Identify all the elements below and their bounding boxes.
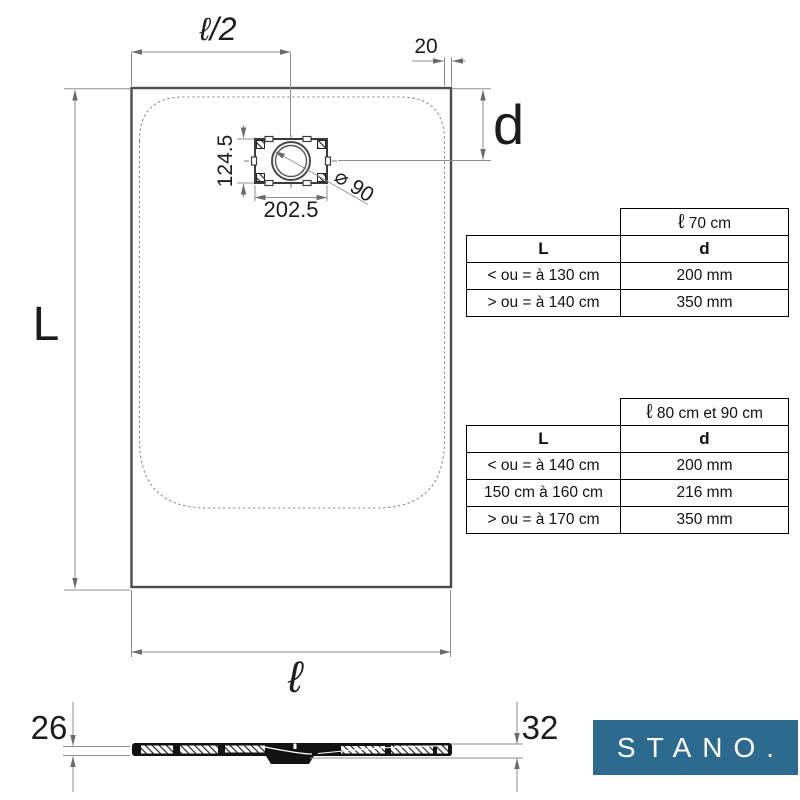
width-value: 70 cm [689, 215, 731, 232]
drain-depth-label: d [493, 93, 524, 156]
stano-logo: STANO. [593, 720, 798, 775]
table-row: L d [467, 426, 789, 453]
table-row: L d [467, 236, 789, 263]
technical-drawing-page: ℓ/2 20 d L 124.5 202.5 ⌀ 90 ℓ 26 32 ℓ 70… [0, 0, 800, 800]
depth-value: 350 mm [621, 290, 789, 317]
length-label: L [33, 298, 60, 351]
spec-table-70cm: ℓ 70 cm L d < ou = à 130 cm 200 mm > ou … [466, 208, 788, 317]
depth-value: 216 mm [621, 480, 789, 507]
table-row: < ou = à 140 cm 200 mm [467, 453, 789, 480]
table-row: ℓ 80 cm et 90 cm [467, 399, 789, 426]
width-value: 80 cm et 90 cm [657, 405, 763, 422]
table-row: ℓ 70 cm [467, 209, 789, 236]
col-header-L: L [467, 426, 621, 453]
empty-cell [467, 209, 621, 236]
col-header-d: d [621, 426, 789, 453]
col-header-d: d [621, 236, 789, 263]
table-row: > ou = à 170 cm 350 mm [467, 507, 789, 534]
length-condition: 150 cm à 160 cm [467, 480, 621, 507]
length-condition: > ou = à 170 cm [467, 507, 621, 534]
drain-outlet-bump [266, 756, 314, 764]
width-symbol: ℓ [646, 401, 652, 423]
thickness-right-label: 32 [522, 709, 559, 746]
drain-diameter-label: ⌀ 90 [330, 165, 378, 207]
depth-value: 200 mm [621, 453, 789, 480]
length-condition: > ou = à 140 cm [467, 290, 621, 317]
edge-offset-label: 20 [414, 35, 437, 58]
length-condition: < ou = à 130 cm [467, 263, 621, 290]
depth-value: 200 mm [621, 263, 789, 290]
top-view [132, 53, 492, 588]
spec-table-80-90cm: ℓ 80 cm et 90 cm L d < ou = à 140 cm 200… [466, 398, 788, 534]
drain-box-width-label: 202.5 [263, 197, 318, 222]
table-row: < ou = à 130 cm 200 mm [467, 263, 789, 290]
table-row: > ou = à 140 cm 350 mm [467, 290, 789, 317]
thickness-left-label: 26 [31, 709, 68, 746]
length-condition: < ou = à 140 cm [467, 453, 621, 480]
side-view [132, 743, 452, 764]
width-symbol: ℓ [678, 211, 684, 233]
width-label: ℓ [287, 653, 304, 702]
depth-value: 350 mm [621, 507, 789, 534]
col-header-L: L [467, 236, 621, 263]
width-header-cell: ℓ 80 cm et 90 cm [621, 399, 789, 426]
drain-box-height-label: 124.5 [214, 135, 237, 188]
half-width-label: ℓ/2 [198, 11, 236, 47]
width-header-cell: ℓ 70 cm [621, 209, 789, 236]
table-row: 150 cm à 160 cm 216 mm [467, 480, 789, 507]
empty-cell [467, 399, 621, 426]
